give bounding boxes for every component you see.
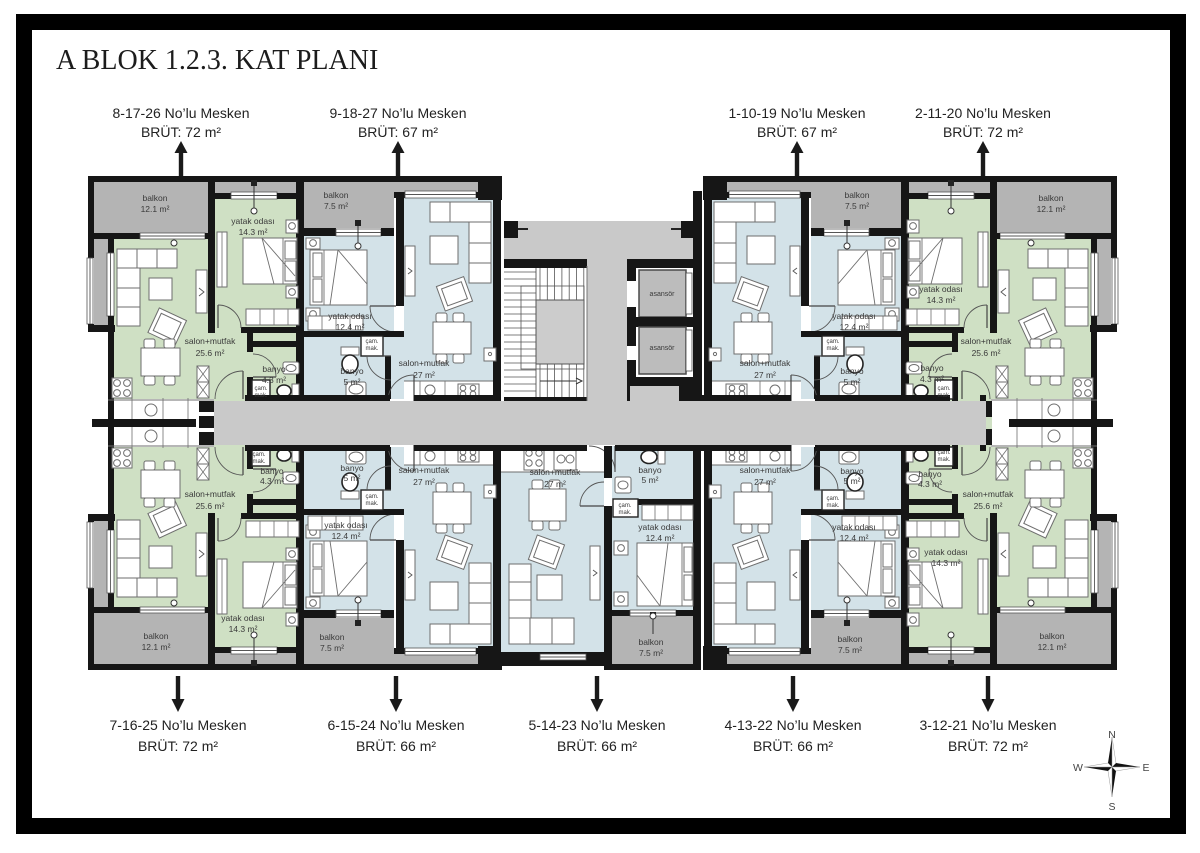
svg-text:yatak odası: yatak odası: [832, 522, 875, 532]
svg-text:salon+mutfak: salon+mutfak: [399, 358, 451, 368]
svg-text:banyo: banyo: [340, 366, 363, 376]
svg-text:W: W: [1073, 762, 1083, 774]
svg-text:14.3 m²: 14.3 m²: [932, 558, 961, 568]
svg-text:12.1 m²: 12.1 m²: [1037, 204, 1066, 214]
svg-text:BRÜT: 67 m²: BRÜT: 67 m²: [757, 123, 837, 140]
svg-text:çam.: çam.: [365, 339, 378, 345]
svg-text:mak.: mak.: [365, 501, 378, 507]
svg-text:25.6 m²: 25.6 m²: [972, 348, 1001, 358]
svg-text:BRÜT: 66 m²: BRÜT: 66 m²: [356, 737, 436, 754]
svg-text:BRÜT: 67 m²: BRÜT: 67 m²: [358, 123, 438, 140]
svg-text:7.5 m²: 7.5 m²: [324, 201, 348, 211]
svg-text:14.3 m²: 14.3 m²: [229, 624, 258, 634]
svg-text:mak.: mak.: [365, 346, 378, 352]
svg-text:mak.: mak.: [618, 510, 631, 516]
svg-text:balkon: balkon: [319, 632, 344, 642]
svg-text:5-14-23 No’lu Mesken: 5-14-23 No’lu Mesken: [529, 717, 666, 733]
svg-text:çam.: çam.: [254, 386, 267, 392]
svg-text:salon+mutfak: salon+mutfak: [963, 489, 1015, 499]
svg-text:banyo: banyo: [638, 465, 661, 475]
svg-text:25.6 m²: 25.6 m²: [974, 501, 1003, 511]
svg-text:A BLOK 1.2.3. KAT PLANI: A BLOK 1.2.3. KAT PLANI: [56, 45, 378, 76]
svg-text:banyo: banyo: [262, 364, 285, 374]
svg-text:salon+mutfak: salon+mutfak: [399, 465, 451, 475]
svg-text:4-13-22 No’lu Mesken: 4-13-22 No’lu Mesken: [725, 717, 862, 733]
svg-text:mak.: mak.: [937, 393, 950, 399]
svg-text:1-10-19 No’lu Mesken: 1-10-19 No’lu Mesken: [729, 105, 866, 121]
svg-text:6-15-24 No’lu Mesken: 6-15-24 No’lu Mesken: [328, 717, 465, 733]
svg-text:4.3 m²: 4.3 m²: [262, 375, 286, 385]
svg-text:mak.: mak.: [254, 393, 267, 399]
svg-text:banyo: banyo: [918, 469, 941, 479]
svg-text:balkon: balkon: [638, 637, 663, 647]
svg-text:7.5 m²: 7.5 m²: [320, 643, 344, 653]
svg-text:14.3 m²: 14.3 m²: [239, 227, 268, 237]
svg-text:25.6 m²: 25.6 m²: [196, 348, 225, 358]
svg-text:5 m²: 5 m²: [844, 377, 861, 387]
svg-text:5 m²: 5 m²: [642, 475, 659, 485]
svg-text:12.4 m²: 12.4 m²: [646, 533, 675, 543]
svg-text:12.4 m²: 12.4 m²: [332, 531, 361, 541]
svg-text:yatak odası: yatak odası: [231, 216, 274, 226]
svg-text:2-11-20 No’lu Mesken: 2-11-20 No’lu Mesken: [915, 105, 1051, 121]
svg-text:3-12-21 No’lu Mesken: 3-12-21 No’lu Mesken: [920, 717, 1057, 733]
svg-text:4.3 m²: 4.3 m²: [918, 479, 942, 489]
svg-text:yatak odası: yatak odası: [221, 613, 264, 623]
svg-text:BRÜT: 72 m²: BRÜT: 72 m²: [943, 123, 1023, 140]
svg-text:mak.: mak.: [826, 346, 839, 352]
svg-text:9-18-27 No’lu Mesken: 9-18-27 No’lu Mesken: [330, 105, 467, 121]
svg-text:balkon: balkon: [1038, 193, 1063, 203]
svg-text:çam.: çam.: [937, 386, 950, 392]
svg-text:BRÜT: 72 m²: BRÜT: 72 m²: [138, 737, 218, 754]
svg-text:5 m²: 5 m²: [344, 377, 361, 387]
svg-text:27 m²: 27 m²: [413, 477, 435, 487]
svg-text:12.1 m²: 12.1 m²: [142, 642, 171, 652]
svg-text:asansör: asansör: [650, 345, 676, 352]
svg-text:banyo: banyo: [840, 466, 863, 476]
svg-text:25.6 m²: 25.6 m²: [196, 501, 225, 511]
svg-text:yatak odası: yatak odası: [638, 522, 681, 532]
svg-text:BRÜT: 72 m²: BRÜT: 72 m²: [948, 737, 1028, 754]
svg-text:çam.: çam.: [826, 496, 839, 502]
svg-text:yatak odası: yatak odası: [832, 311, 875, 321]
svg-text:salon+mutfak: salon+mutfak: [185, 336, 237, 346]
svg-text:balkon: balkon: [837, 634, 862, 644]
svg-text:balkon: balkon: [844, 190, 869, 200]
svg-text:7.5 m²: 7.5 m²: [639, 648, 663, 658]
svg-text:14.3 m²: 14.3 m²: [927, 295, 956, 305]
svg-text:banyo: banyo: [840, 366, 863, 376]
svg-text:4.3 m²: 4.3 m²: [920, 374, 944, 384]
svg-text:mak.: mak.: [252, 459, 265, 465]
svg-text:E: E: [1142, 762, 1149, 774]
svg-text:yatak odası: yatak odası: [924, 547, 967, 557]
svg-text:27 m²: 27 m²: [413, 370, 435, 380]
svg-text:12.4 m²: 12.4 m²: [840, 533, 869, 543]
svg-text:BRÜT: 66 m²: BRÜT: 66 m²: [557, 737, 637, 754]
svg-text:balkon: balkon: [143, 631, 168, 641]
svg-text:asansör: asansör: [650, 291, 676, 298]
svg-text:banyo: banyo: [260, 466, 283, 476]
svg-text:4.3 m²: 4.3 m²: [260, 476, 284, 486]
svg-text:salon+mutfak: salon+mutfak: [185, 489, 237, 499]
svg-text:BRÜT: 72 m²: BRÜT: 72 m²: [141, 123, 221, 140]
svg-text:5 m²: 5 m²: [844, 476, 861, 486]
svg-text:27 m²: 27 m²: [754, 477, 776, 487]
svg-text:N: N: [1108, 729, 1116, 741]
svg-text:balkon: balkon: [1039, 631, 1064, 641]
svg-text:12.1 m²: 12.1 m²: [141, 204, 170, 214]
svg-text:12.1 m²: 12.1 m²: [1038, 642, 1067, 652]
svg-text:banyo: banyo: [920, 363, 943, 373]
svg-text:mak.: mak.: [826, 503, 839, 509]
svg-text:BRÜT: 66 m²: BRÜT: 66 m²: [753, 737, 833, 754]
svg-text:çam.: çam.: [937, 450, 950, 456]
svg-text:mak.: mak.: [937, 457, 950, 463]
svg-text:salon+mutfak: salon+mutfak: [530, 467, 582, 477]
svg-text:banyo: banyo: [340, 463, 363, 473]
svg-text:salon+mutfak: salon+mutfak: [740, 465, 792, 475]
svg-text:8-17-26 No’lu Mesken: 8-17-26 No’lu Mesken: [113, 105, 250, 121]
svg-text:12.4 m²: 12.4 m²: [840, 322, 869, 332]
svg-text:5 m²: 5 m²: [344, 473, 361, 483]
svg-text:yatak odası: yatak odası: [328, 311, 371, 321]
svg-text:7.5 m²: 7.5 m²: [838, 645, 862, 655]
svg-text:7.5 m²: 7.5 m²: [845, 201, 869, 211]
svg-text:7-16-25 No’lu Mesken: 7-16-25 No’lu Mesken: [110, 717, 247, 733]
svg-text:balkon: balkon: [323, 190, 348, 200]
svg-text:çam.: çam.: [826, 339, 839, 345]
svg-text:çam.: çam.: [365, 494, 378, 500]
svg-text:yatak odası: yatak odası: [919, 284, 962, 294]
svg-text:çam.: çam.: [252, 452, 265, 458]
svg-text:S: S: [1108, 801, 1115, 813]
svg-text:yatak odası: yatak odası: [324, 520, 367, 530]
svg-text:çam.: çam.: [618, 503, 631, 509]
svg-text:salon+mutfak: salon+mutfak: [740, 358, 792, 368]
svg-text:12.4 m²: 12.4 m²: [336, 322, 365, 332]
svg-text:balkon: balkon: [142, 193, 167, 203]
svg-text:27 m²: 27 m²: [544, 479, 566, 489]
svg-text:salon+mutfak: salon+mutfak: [961, 336, 1013, 346]
svg-text:27 m²: 27 m²: [754, 370, 776, 380]
